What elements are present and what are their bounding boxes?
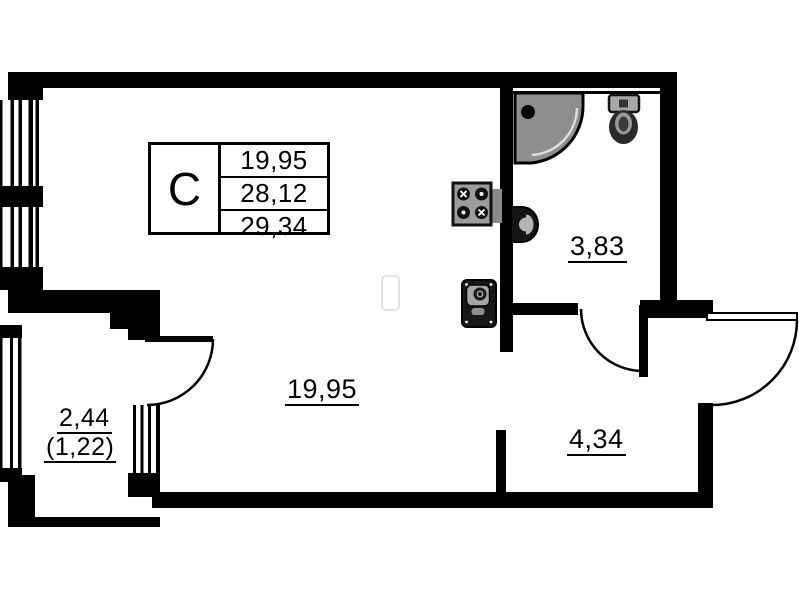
- wall-top-left-corner: [8, 72, 43, 100]
- window-lower-icon: [0, 207, 39, 267]
- stove-icon: [453, 183, 502, 225]
- washbasin-icon: [511, 207, 538, 242]
- wall-balcony-top: [8, 290, 160, 313]
- hallway-area-label: 4,34: [567, 425, 626, 456]
- legend-row-total-area-with-balcony: 29,34: [221, 211, 327, 242]
- bathroom-area-label: 3,83: [568, 232, 627, 263]
- unit-areas-column: 19,95 28,12 29,34: [221, 145, 327, 232]
- floor-plan: 19,95 3,83 4,34 2,44 (1,22) C 19,95 28,1…: [0, 0, 799, 600]
- unit-type-cell: C: [151, 145, 221, 232]
- legend-row-total-area: 28,12: [221, 176, 327, 211]
- wall-left-lower-block: [0, 267, 43, 290]
- entry-door-icon: [707, 313, 797, 405]
- wall-window-mullion: [0, 186, 43, 207]
- balcony-door-frame-icon: [133, 405, 160, 473]
- window-upper-icon: [0, 100, 39, 186]
- toilet-icon: [609, 95, 639, 144]
- balcony-door-icon: [145, 336, 213, 405]
- bathroom-door-icon: [581, 305, 648, 377]
- wall-right-lower: [698, 403, 713, 508]
- wall-hall-partition: [496, 430, 506, 492]
- floor-plan-drawing: [0, 0, 799, 600]
- shower-icon: [515, 93, 583, 163]
- wall-balcony-glazing-bottom-block: [0, 468, 22, 482]
- legend-row-living-area: 19,95: [221, 145, 327, 176]
- wall-balcony-bottom: [8, 517, 160, 527]
- wall-balcony-door-header: [128, 313, 160, 340]
- faint-artifact: [382, 276, 399, 310]
- wall-right-upper: [660, 72, 677, 300]
- wall-entry-lintel: [640, 300, 713, 318]
- wall-bottom: [152, 492, 713, 508]
- unit-legend-table: C 19,95 28,12 29,34: [148, 142, 330, 235]
- wall-balcony-glazing-top-block: [0, 325, 22, 338]
- balcony-reduced-area-label: (1,22): [44, 434, 116, 463]
- living-area-label: 19,95: [285, 375, 359, 406]
- balcony-glazing-icon: [0, 338, 22, 468]
- wall-top: [8, 72, 677, 88]
- kitchen-sink-icon: [462, 280, 496, 327]
- balcony-area-label: 2,44: [57, 405, 112, 434]
